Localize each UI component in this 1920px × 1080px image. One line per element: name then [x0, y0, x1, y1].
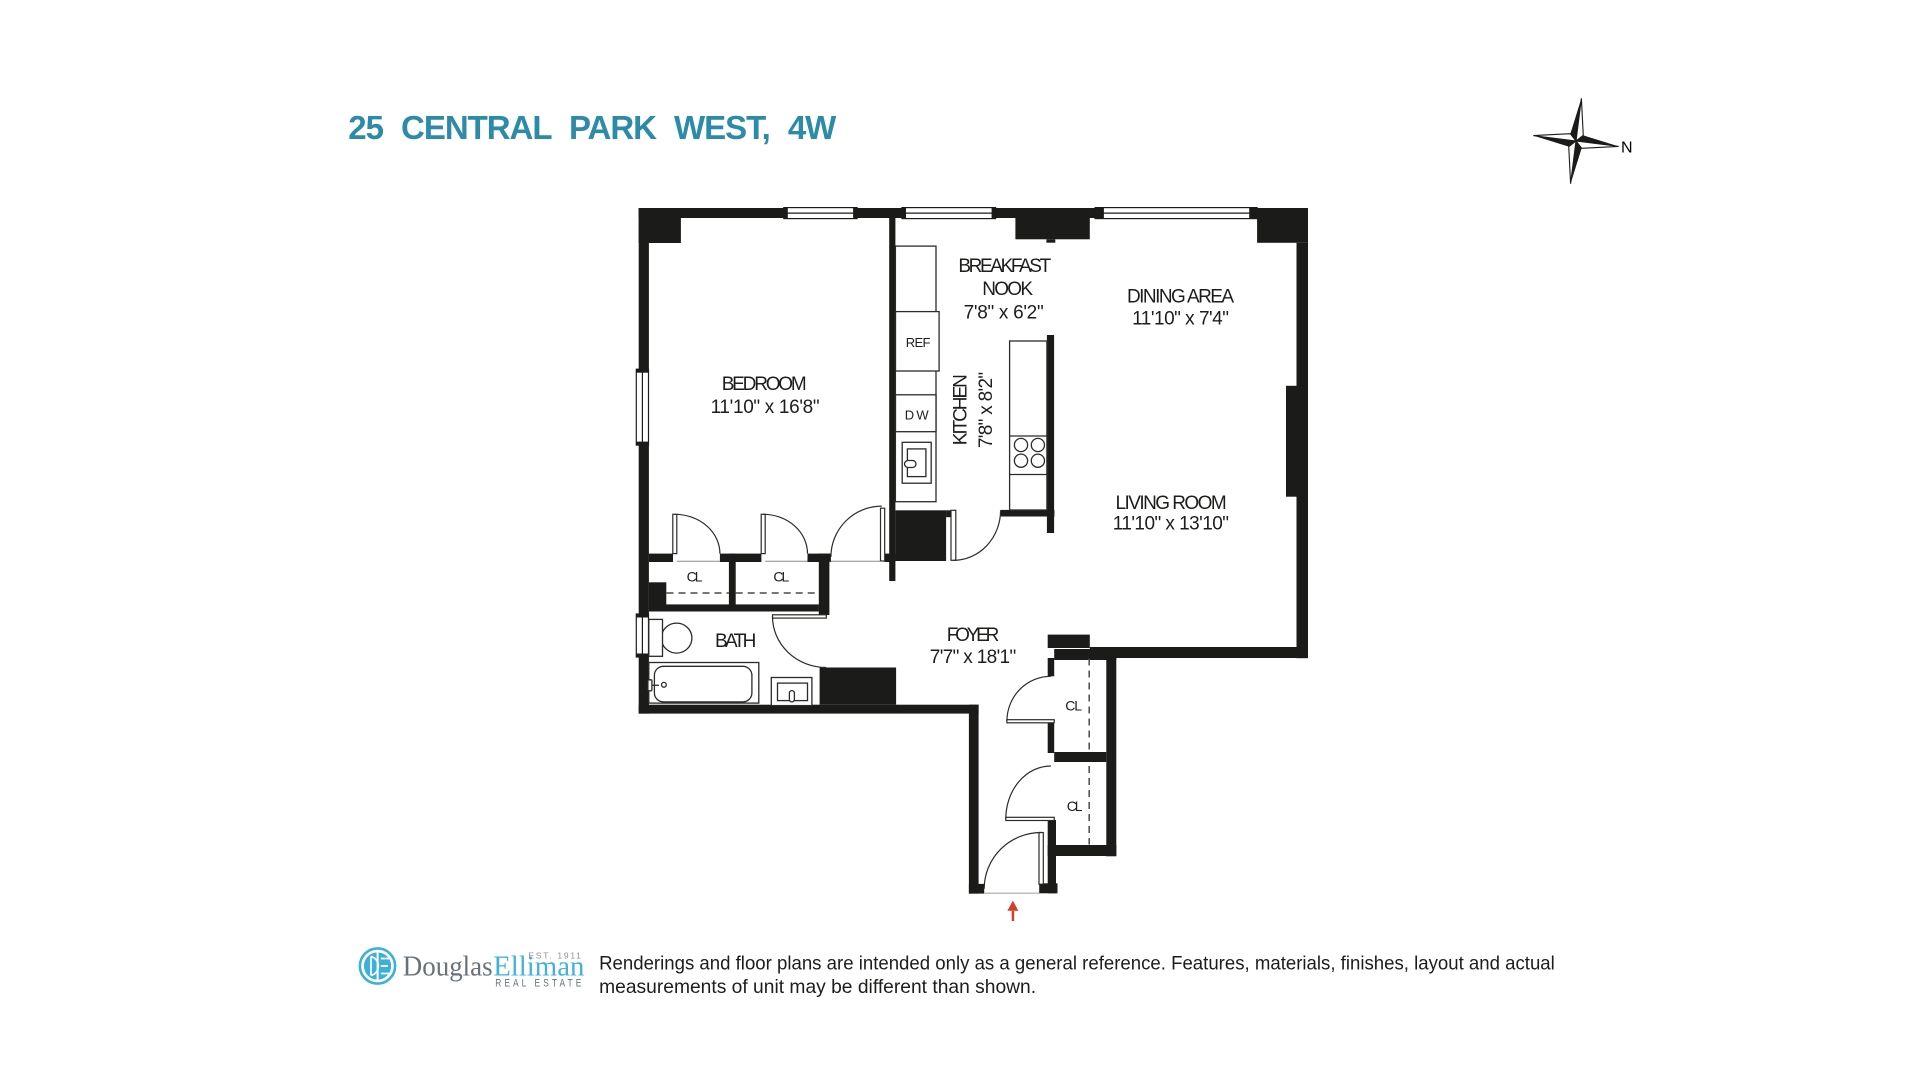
- svg-text:BEDROOM: BEDROOM: [722, 374, 807, 395]
- svg-text:NOOK: NOOK: [982, 279, 1033, 300]
- svg-text:11'10" x 7'4": 11'10" x 7'4": [1132, 309, 1229, 330]
- svg-text:LIVING ROOM: LIVING ROOM: [1116, 493, 1227, 514]
- svg-text:CL: CL: [1067, 798, 1083, 814]
- svg-text:N: N: [1621, 140, 1633, 157]
- svg-text:FOYER: FOYER: [947, 625, 1000, 646]
- svg-text:CL: CL: [1065, 698, 1082, 714]
- svg-text:7'8" x 6'2": 7'8" x 6'2": [964, 303, 1044, 324]
- svg-text:7'7" x 18'1": 7'7" x 18'1": [930, 647, 1016, 668]
- svg-text:REAL ESTATE: REAL ESTATE: [495, 977, 584, 989]
- svg-text:measurements of unit may be di: measurements of unit may be different th…: [599, 976, 1036, 998]
- svg-text:25 CENTRAL PARK WEST, 4W: 25 CENTRAL PARK WEST, 4W: [348, 109, 837, 146]
- svg-text:Douglas: Douglas: [403, 950, 493, 982]
- svg-text:BREAKFAST: BREAKFAST: [958, 256, 1051, 277]
- svg-text:DW: DW: [905, 408, 930, 423]
- svg-text:REF: REF: [906, 335, 931, 350]
- svg-text:11'10" x 16'8": 11'10" x 16'8": [711, 397, 820, 418]
- svg-text:11'10" x 13'10": 11'10" x 13'10": [1113, 514, 1229, 535]
- svg-text:Renderings and floor plans are: Renderings and floor plans are intended …: [599, 952, 1555, 974]
- svg-text:CL: CL: [773, 569, 789, 585]
- svg-text:CL: CL: [687, 569, 703, 585]
- svg-text:BATH: BATH: [715, 631, 756, 652]
- svg-text:7'8" x 8'2": 7'8" x 8'2": [976, 372, 997, 448]
- svg-text:EST. 1911: EST. 1911: [528, 950, 583, 960]
- svg-text:DINING AREA: DINING AREA: [1127, 286, 1234, 307]
- svg-text:KITCHEN: KITCHEN: [951, 374, 972, 445]
